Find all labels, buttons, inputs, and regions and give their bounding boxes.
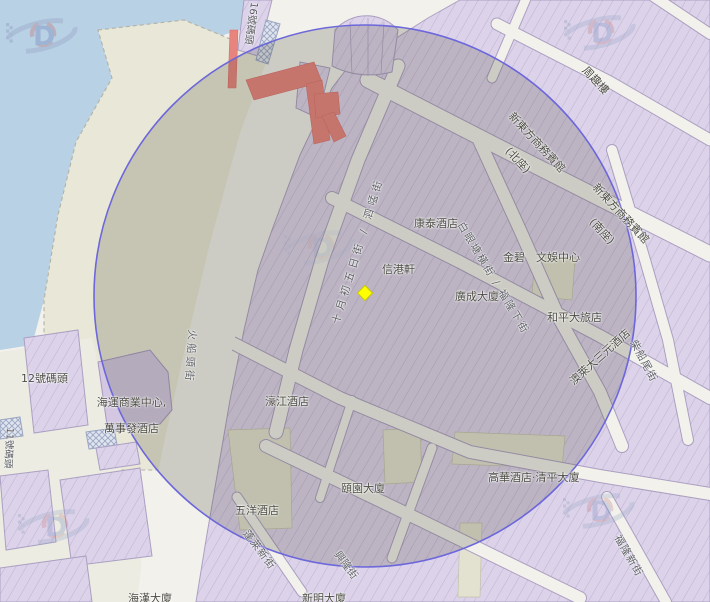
map-base: D bbox=[0, 0, 710, 602]
map-canvas[interactable]: D bbox=[0, 0, 710, 602]
